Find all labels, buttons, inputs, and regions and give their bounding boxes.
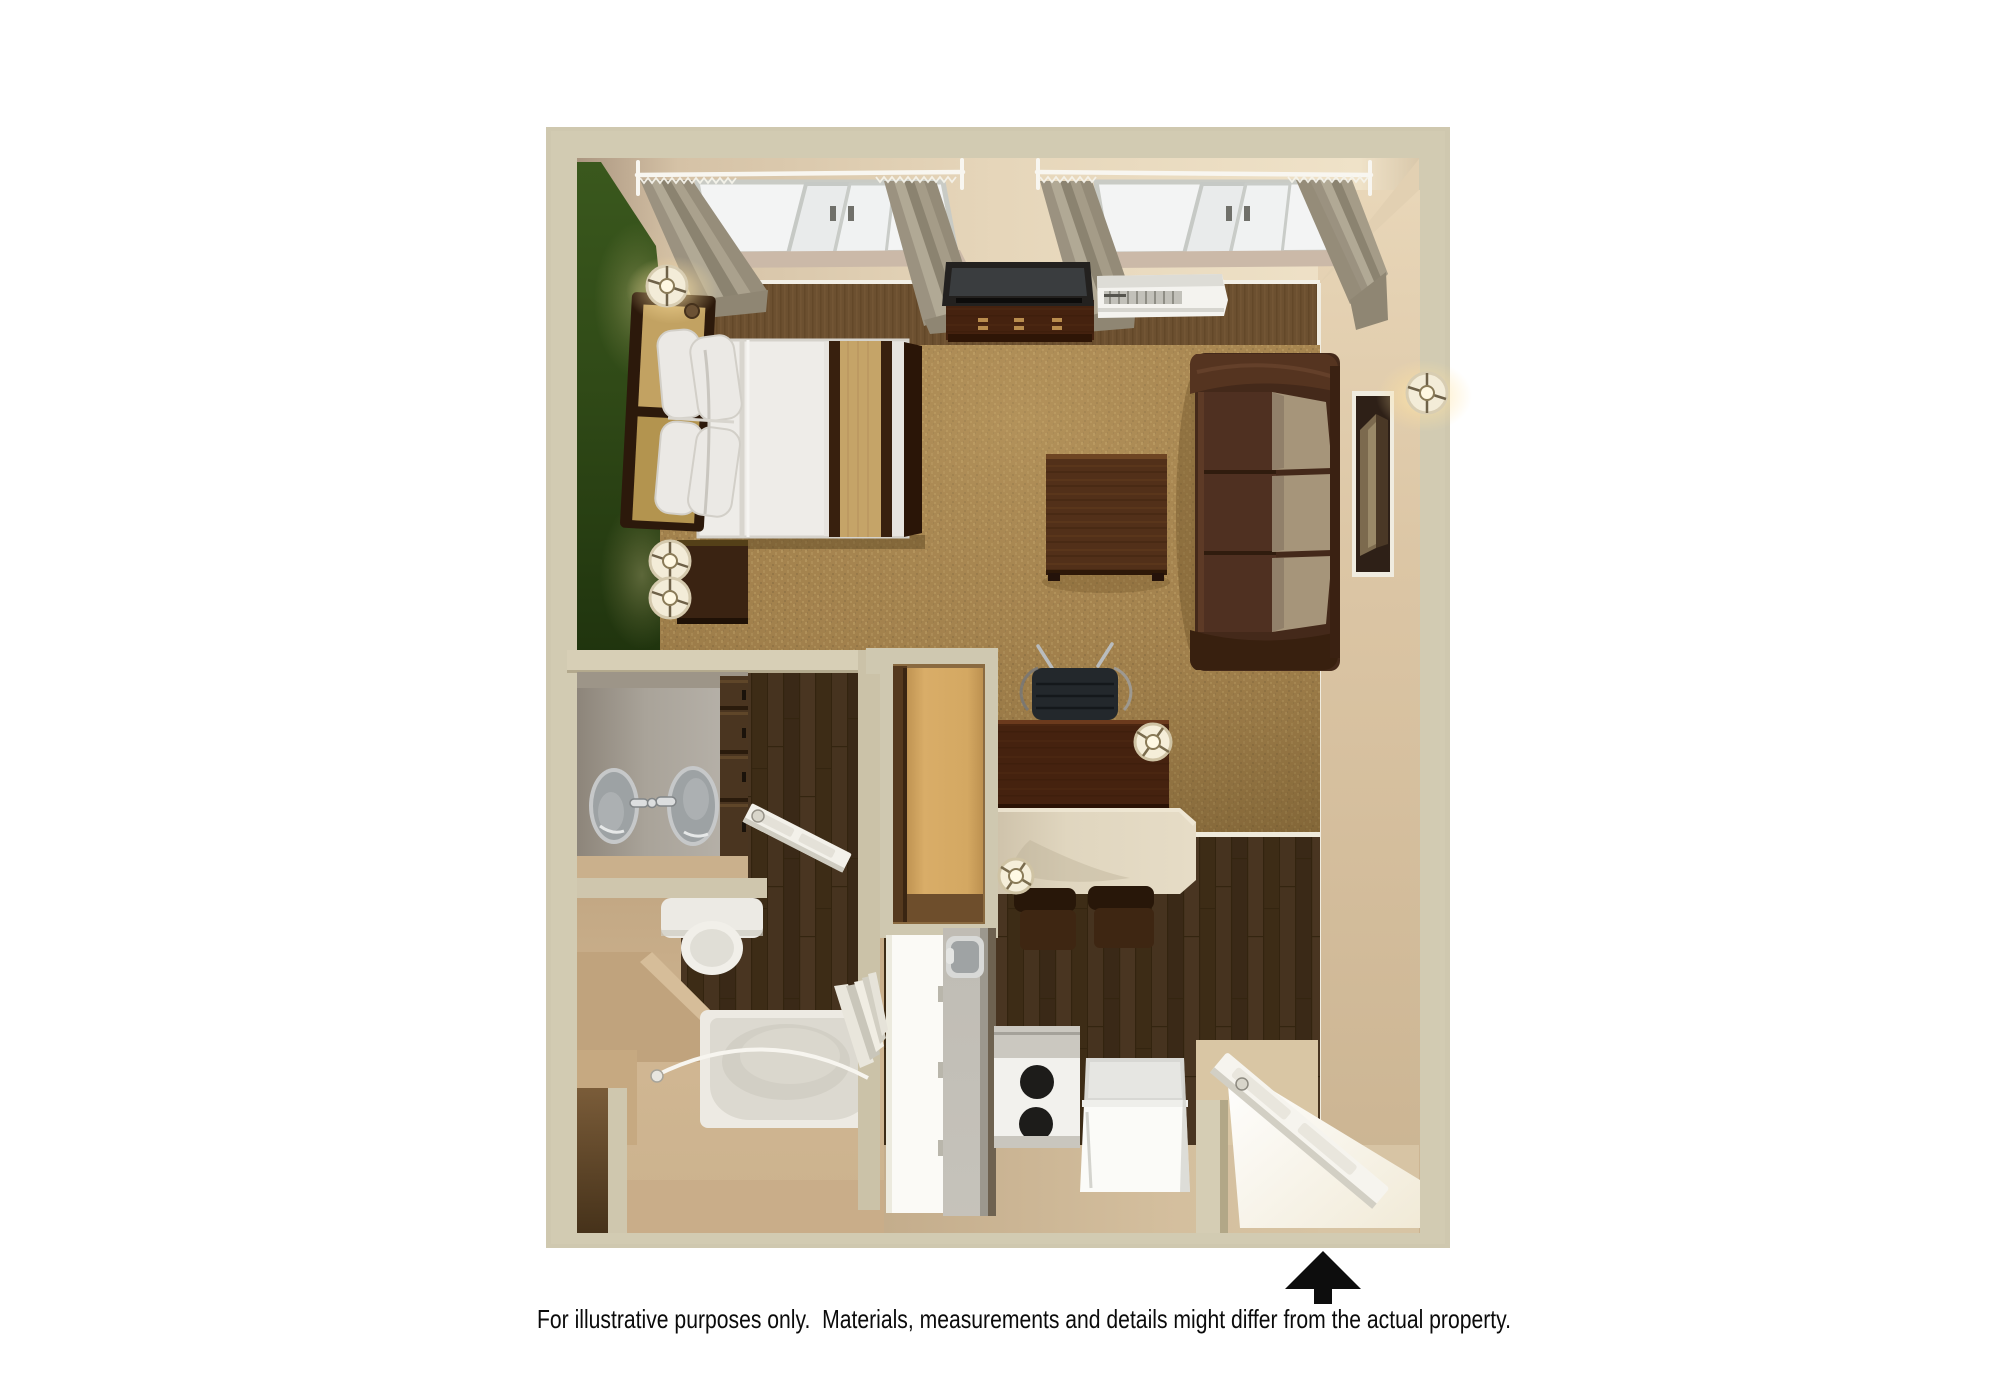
svg-text:For illustrative purposes only: For illustrative purposes only. Material… (537, 1304, 1511, 1334)
